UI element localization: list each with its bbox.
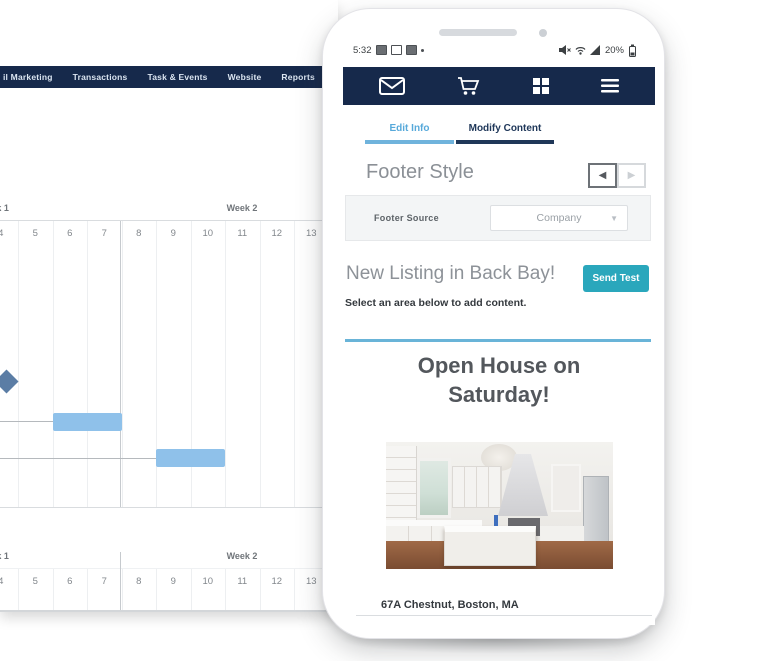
prev-arrow-button[interactable]: ◀ (588, 163, 617, 188)
next-arrow-icon: ▶ (628, 170, 636, 181)
gridline (260, 221, 261, 507)
nav-item[interactable]: il Marketing (3, 72, 53, 82)
nav-item[interactable]: Website (228, 72, 262, 82)
tab-edit-info[interactable]: Edit Info (365, 123, 454, 144)
desktop-app-window: il MarketingTransactionsTask & EventsWeb… (0, 0, 338, 612)
signal-icon (590, 45, 601, 55)
photo-fridge (583, 476, 609, 548)
gridline (53, 569, 54, 610)
status-bar: 5:32 (353, 41, 637, 59)
footer-source-panel: Footer Source Company ▼ (345, 195, 651, 241)
prev-arrow-icon: ◀ (599, 170, 607, 181)
photo-left-window (417, 458, 451, 518)
phone-mockup: 5:32 (322, 8, 665, 639)
app-toolbar (343, 67, 655, 105)
dropdown-value: Company (537, 212, 582, 224)
photo-upper-cabinet (452, 466, 502, 508)
editor-tabs: Edit Info Modify Content (365, 123, 554, 144)
vibrate-icon (391, 45, 402, 55)
menu-icon[interactable] (601, 79, 619, 93)
tab-modify-content[interactable]: Modify Content (456, 123, 554, 144)
gantt-section-divider (0, 507, 338, 508)
gridline (294, 221, 295, 507)
photo-blue-bottle (494, 515, 498, 526)
image-icon (376, 45, 387, 55)
phone-speaker (439, 29, 517, 36)
gridline (260, 569, 261, 610)
nav-item[interactable]: Reports (281, 72, 315, 82)
listing-photo[interactable] (386, 442, 613, 569)
gridline (87, 221, 88, 507)
gridline (18, 221, 19, 507)
notification-dot-icon (421, 49, 424, 52)
gridline (53, 221, 54, 507)
sd-card-icon (406, 45, 417, 55)
gridline (294, 569, 295, 610)
next-arrow-button[interactable]: ▶ (617, 163, 646, 188)
gantt-bar[interactable] (53, 413, 122, 431)
gantt-connector (0, 458, 156, 459)
email-top-divider (345, 339, 651, 342)
battery-percent: 20% (605, 45, 624, 56)
footer-source-label: Footer Source (374, 213, 439, 223)
listing-title: New Listing in Back Bay! (346, 263, 555, 285)
shopping-cart-icon[interactable] (457, 76, 481, 96)
nav-item[interactable]: Task & Events (147, 72, 207, 82)
gantt-bar[interactable] (156, 449, 225, 467)
status-time: 5:32 (353, 45, 372, 56)
envelope-icon[interactable] (379, 77, 405, 95)
apps-grid-icon[interactable] (533, 78, 549, 94)
gantt-connector (0, 421, 53, 422)
phone-screen: 5:32 (343, 37, 655, 625)
instruction-text: Select an area below to add content. (345, 297, 526, 309)
phone-camera (539, 29, 547, 37)
gridline (225, 569, 226, 610)
send-test-button[interactable]: Send Test (583, 265, 649, 292)
wifi-icon (575, 45, 586, 55)
gridline (18, 569, 19, 610)
week-2-label: Week 2 (221, 203, 263, 213)
gantt-gridlines (0, 569, 338, 610)
week-1-label: Week 1 (0, 203, 9, 213)
nav-item[interactable]: Transactions (73, 72, 128, 82)
email-address[interactable]: 67A Chestnut, Boston, MA (381, 599, 519, 611)
footer-source-dropdown[interactable]: Company ▼ (490, 205, 628, 231)
tab-underline (365, 140, 454, 144)
gridline (122, 569, 123, 610)
gridline (122, 221, 123, 507)
photo-right-window (551, 464, 581, 512)
tab-label: Modify Content (469, 123, 542, 134)
caret-down-icon: ▼ (610, 214, 618, 223)
status-bar-right: 20% (559, 44, 637, 57)
tab-label: Edit Info (390, 123, 430, 134)
week-boundary-line (120, 221, 121, 507)
gridline (156, 569, 157, 610)
gridline (87, 569, 88, 610)
week-boundary-line (120, 552, 121, 610)
week-1-label: Week 1 (0, 551, 9, 561)
desktop-top-nav: il MarketingTransactionsTask & EventsWeb… (0, 66, 338, 88)
battery-icon (628, 44, 637, 57)
week-2-label: Week 2 (221, 551, 263, 561)
photo-island (444, 526, 536, 566)
screenshot-stage: il MarketingTransactionsTask & EventsWeb… (0, 0, 770, 661)
mute-icon (559, 45, 571, 55)
section-title: Footer Style (366, 161, 474, 184)
tab-underline (456, 140, 554, 144)
address-underline (356, 615, 652, 616)
email-headline[interactable]: Open House on Saturday! (379, 351, 619, 409)
gridline (191, 569, 192, 610)
status-bar-left: 5:32 (353, 45, 424, 56)
gridline (225, 221, 226, 507)
